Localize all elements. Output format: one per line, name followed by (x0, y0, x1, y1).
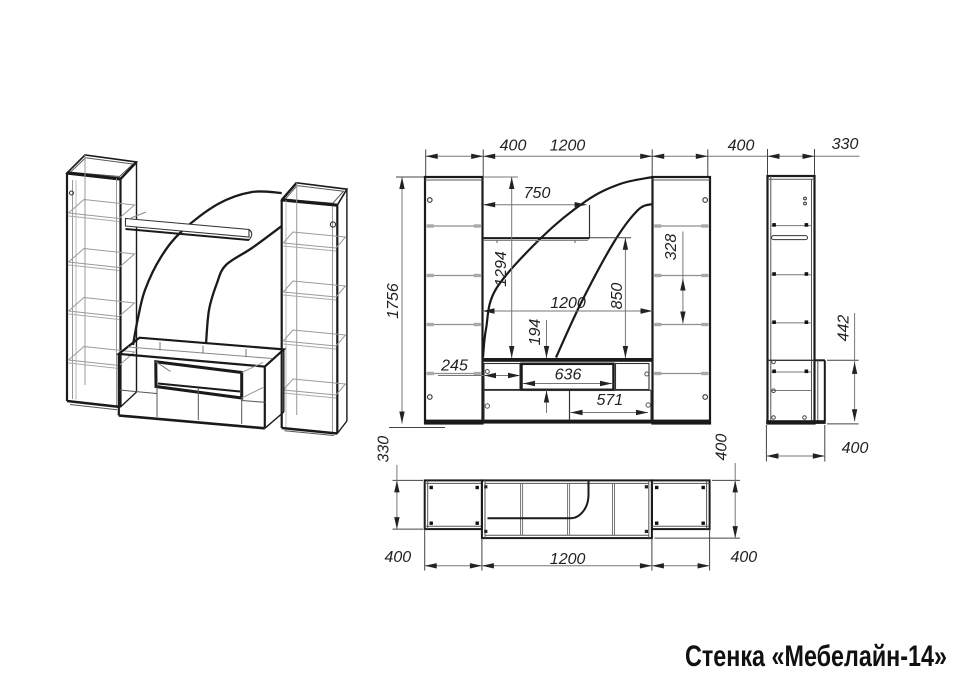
svg-text:330: 330 (375, 436, 392, 463)
svg-text:400: 400 (842, 440, 869, 457)
svg-text:400: 400 (730, 549, 757, 566)
svg-text:330: 330 (832, 136, 859, 153)
svg-text:Стенка «Мебелайн-14»: Стенка «Мебелайн-14» (685, 640, 947, 673)
svg-text:400: 400 (500, 138, 527, 155)
svg-text:750: 750 (524, 185, 551, 202)
svg-text:1294: 1294 (493, 251, 510, 287)
svg-text:400: 400 (728, 138, 755, 155)
svg-text:245: 245 (440, 358, 468, 375)
svg-text:571: 571 (596, 392, 623, 409)
svg-text:1200: 1200 (550, 138, 586, 155)
svg-text:1756: 1756 (385, 283, 402, 319)
svg-text:850: 850 (609, 283, 626, 310)
svg-text:328: 328 (663, 234, 680, 261)
svg-text:442: 442 (836, 315, 853, 342)
svg-text:636: 636 (555, 367, 582, 384)
svg-text:1200: 1200 (550, 551, 586, 568)
svg-text:1200: 1200 (550, 295, 586, 312)
svg-text:400: 400 (384, 549, 411, 566)
svg-text:400: 400 (713, 434, 730, 461)
svg-text:194: 194 (527, 319, 544, 346)
